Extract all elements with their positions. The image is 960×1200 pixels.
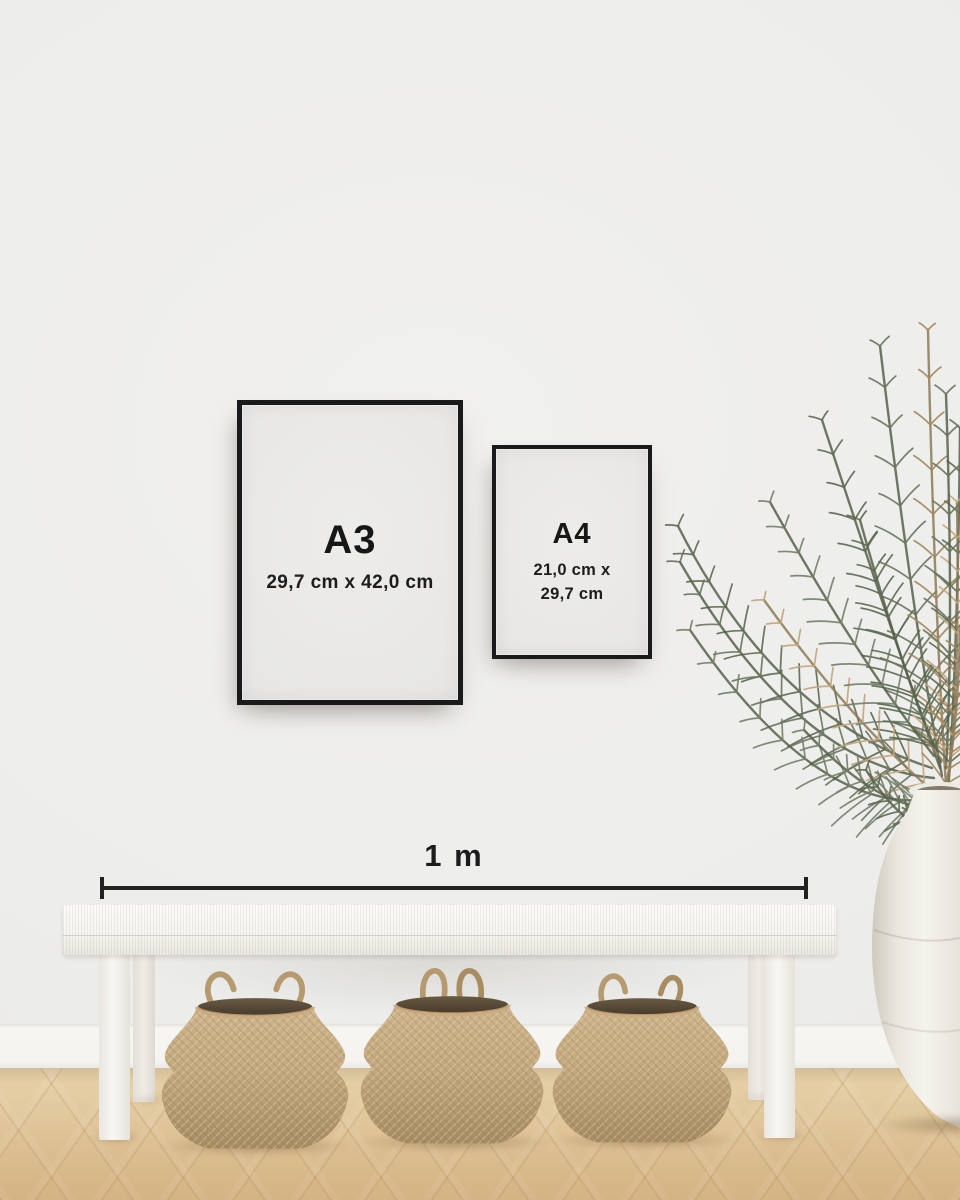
white-urn-vase [860, 780, 960, 1135]
frame-a4: A4 21,0 cm x 29,7 cm [492, 445, 652, 659]
bench-seat [63, 905, 836, 955]
ruler-line [100, 886, 808, 890]
frame-a4-dimensions-line2: 29,7 cm [533, 582, 610, 606]
frame-a3-size-label: A3 [323, 520, 376, 560]
frame-a4-dimensions-line1: 21,0 cm x [533, 558, 610, 582]
frame-a3-paper: A3 29,7 cm x 42,0 cm [242, 405, 458, 700]
basket-middle [361, 971, 544, 1144]
bench-leg-front-right [764, 950, 795, 1138]
room-scene: A3 29,7 cm x 42,0 cm A4 21,0 cm x 29,7 c… [0, 0, 960, 1200]
ruler-tick-left [100, 877, 104, 899]
frame-a3-dimensions: 29,7 cm x 42,0 cm [266, 572, 433, 594]
ruler-label: 1 m [100, 838, 808, 874]
frame-a4-size-label: A4 [552, 520, 591, 549]
bench-leg-front-left [99, 950, 130, 1140]
vase-body [872, 790, 960, 1128]
basket-right [553, 976, 732, 1142]
frame-a4-paper: A4 21,0 cm x 29,7 cm [496, 449, 648, 655]
size-ruler: 1 m [100, 838, 808, 900]
frame-a3: A3 29,7 cm x 42,0 cm [237, 400, 463, 705]
basket-left [162, 974, 348, 1148]
seagrass-baskets [140, 955, 760, 1165]
frame-a4-dimensions: 21,0 cm x 29,7 cm [533, 558, 610, 607]
ruler-tick-right [804, 877, 808, 899]
